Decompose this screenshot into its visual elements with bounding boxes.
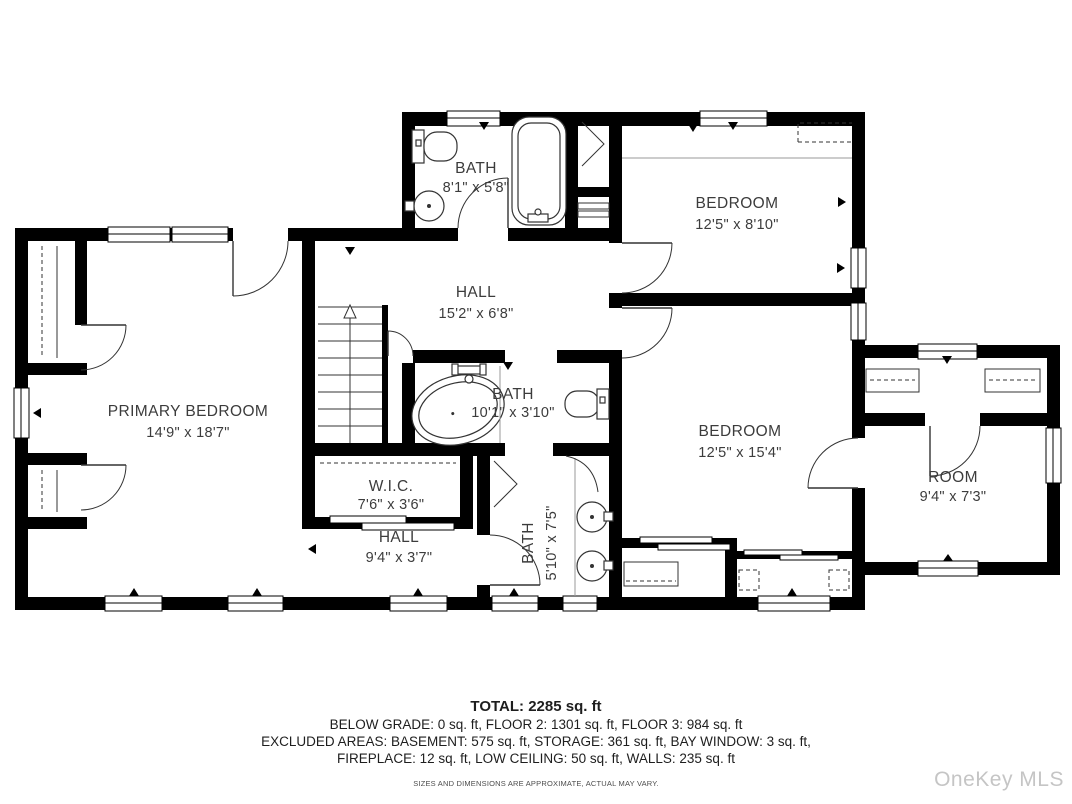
window [172,227,228,242]
window [390,596,447,611]
door-bedroom-top [622,243,672,293]
summary-line-3: FIREPLACE: 12 sq. ft, LOW CEILING: 50 sq… [0,750,1072,767]
bifold-closet-strip [582,122,604,166]
door-room-right [808,438,858,488]
dims-bedroom-right: 12'5" x 15'4" [698,445,781,461]
toilet [412,130,457,163]
door-bedroom-right [622,308,672,358]
total-area: TOTAL: 2285 sq. ft [0,698,1072,716]
window [108,227,170,242]
staircase [318,305,382,443]
label-bedroom-top: BEDROOM [696,195,779,212]
window [447,111,500,126]
label-bath-top: BATH [455,160,497,177]
summary-line-1: BELOW GRADE: 0 sq. ft, FLOOR 2: 1301 sq.… [0,716,1072,733]
dims-bath-lower: 5'10" x 7'5" [544,505,560,580]
label-bedroom-right: BEDROOM [699,423,782,440]
floor-plan-page: BATH 8'1" x 5'8" BEDROOM 12'5" x 8'10" H… [0,0,1072,804]
bifold-bath-lower [494,461,517,507]
window [228,596,283,611]
disclaimer-text: SIZES AND DIMENSIONS ARE APPROXIMATE, AC… [0,779,1072,788]
window [563,596,597,611]
dims-bath-center: 10'1" x 3'10" [471,405,554,421]
watermark-onekey-mls: OneKey MLS [934,768,1064,792]
floor-plan-svg: BATH 8'1" x 5'8" BEDROOM 12'5" x 8'10" H… [0,0,1072,804]
dims-bath-top: 8'1" x 5'8" [443,180,510,196]
sink [577,551,613,581]
toilet [565,389,609,419]
dims-wic: 7'6" x 3'6" [358,497,425,513]
storage-shelves [866,369,1040,392]
window [492,596,538,611]
sink [577,502,613,532]
dims-hall-main: 15'2" x 6'8" [438,306,513,322]
dims-room-right: 9'4" x 7'3" [920,489,987,505]
dims-hall-lower: 9'4" x 3'7" [366,550,433,566]
window [14,388,29,438]
label-hall-lower: HALL [379,529,419,546]
window [758,596,830,611]
area-summary: TOTAL: 2285 sq. ft BELOW GRADE: 0 sq. ft… [0,698,1072,767]
label-primary-bedroom: PRIMARY BEDROOM [108,403,268,420]
closet-strip-shelves [578,203,609,217]
closet-rods [42,246,456,512]
window [105,596,162,611]
door-closet-bottom [81,465,126,510]
window [918,561,978,576]
label-wic: W.I.C. [369,478,414,495]
door-stairs-closet [388,331,413,356]
door-closet-top [81,325,126,370]
window [851,303,866,340]
label-bath-center: BATH [492,386,534,403]
door-primary-bedroom [233,241,288,296]
window [851,248,866,288]
label-room-right: ROOM [928,469,978,486]
dims-primary-bedroom: 14'9" x 18'7" [146,425,229,441]
label-hall-main: HALL [456,284,496,301]
label-bath-lower: BATH [520,522,537,564]
dims-bedroom-top: 12'5" x 8'10" [695,217,778,233]
shower-curve [566,456,598,492]
bathtub [512,117,566,225]
summary-line-2: EXCLUDED AREAS: BASEMENT: 575 sq. ft, ST… [0,733,1072,750]
window [1046,428,1061,483]
